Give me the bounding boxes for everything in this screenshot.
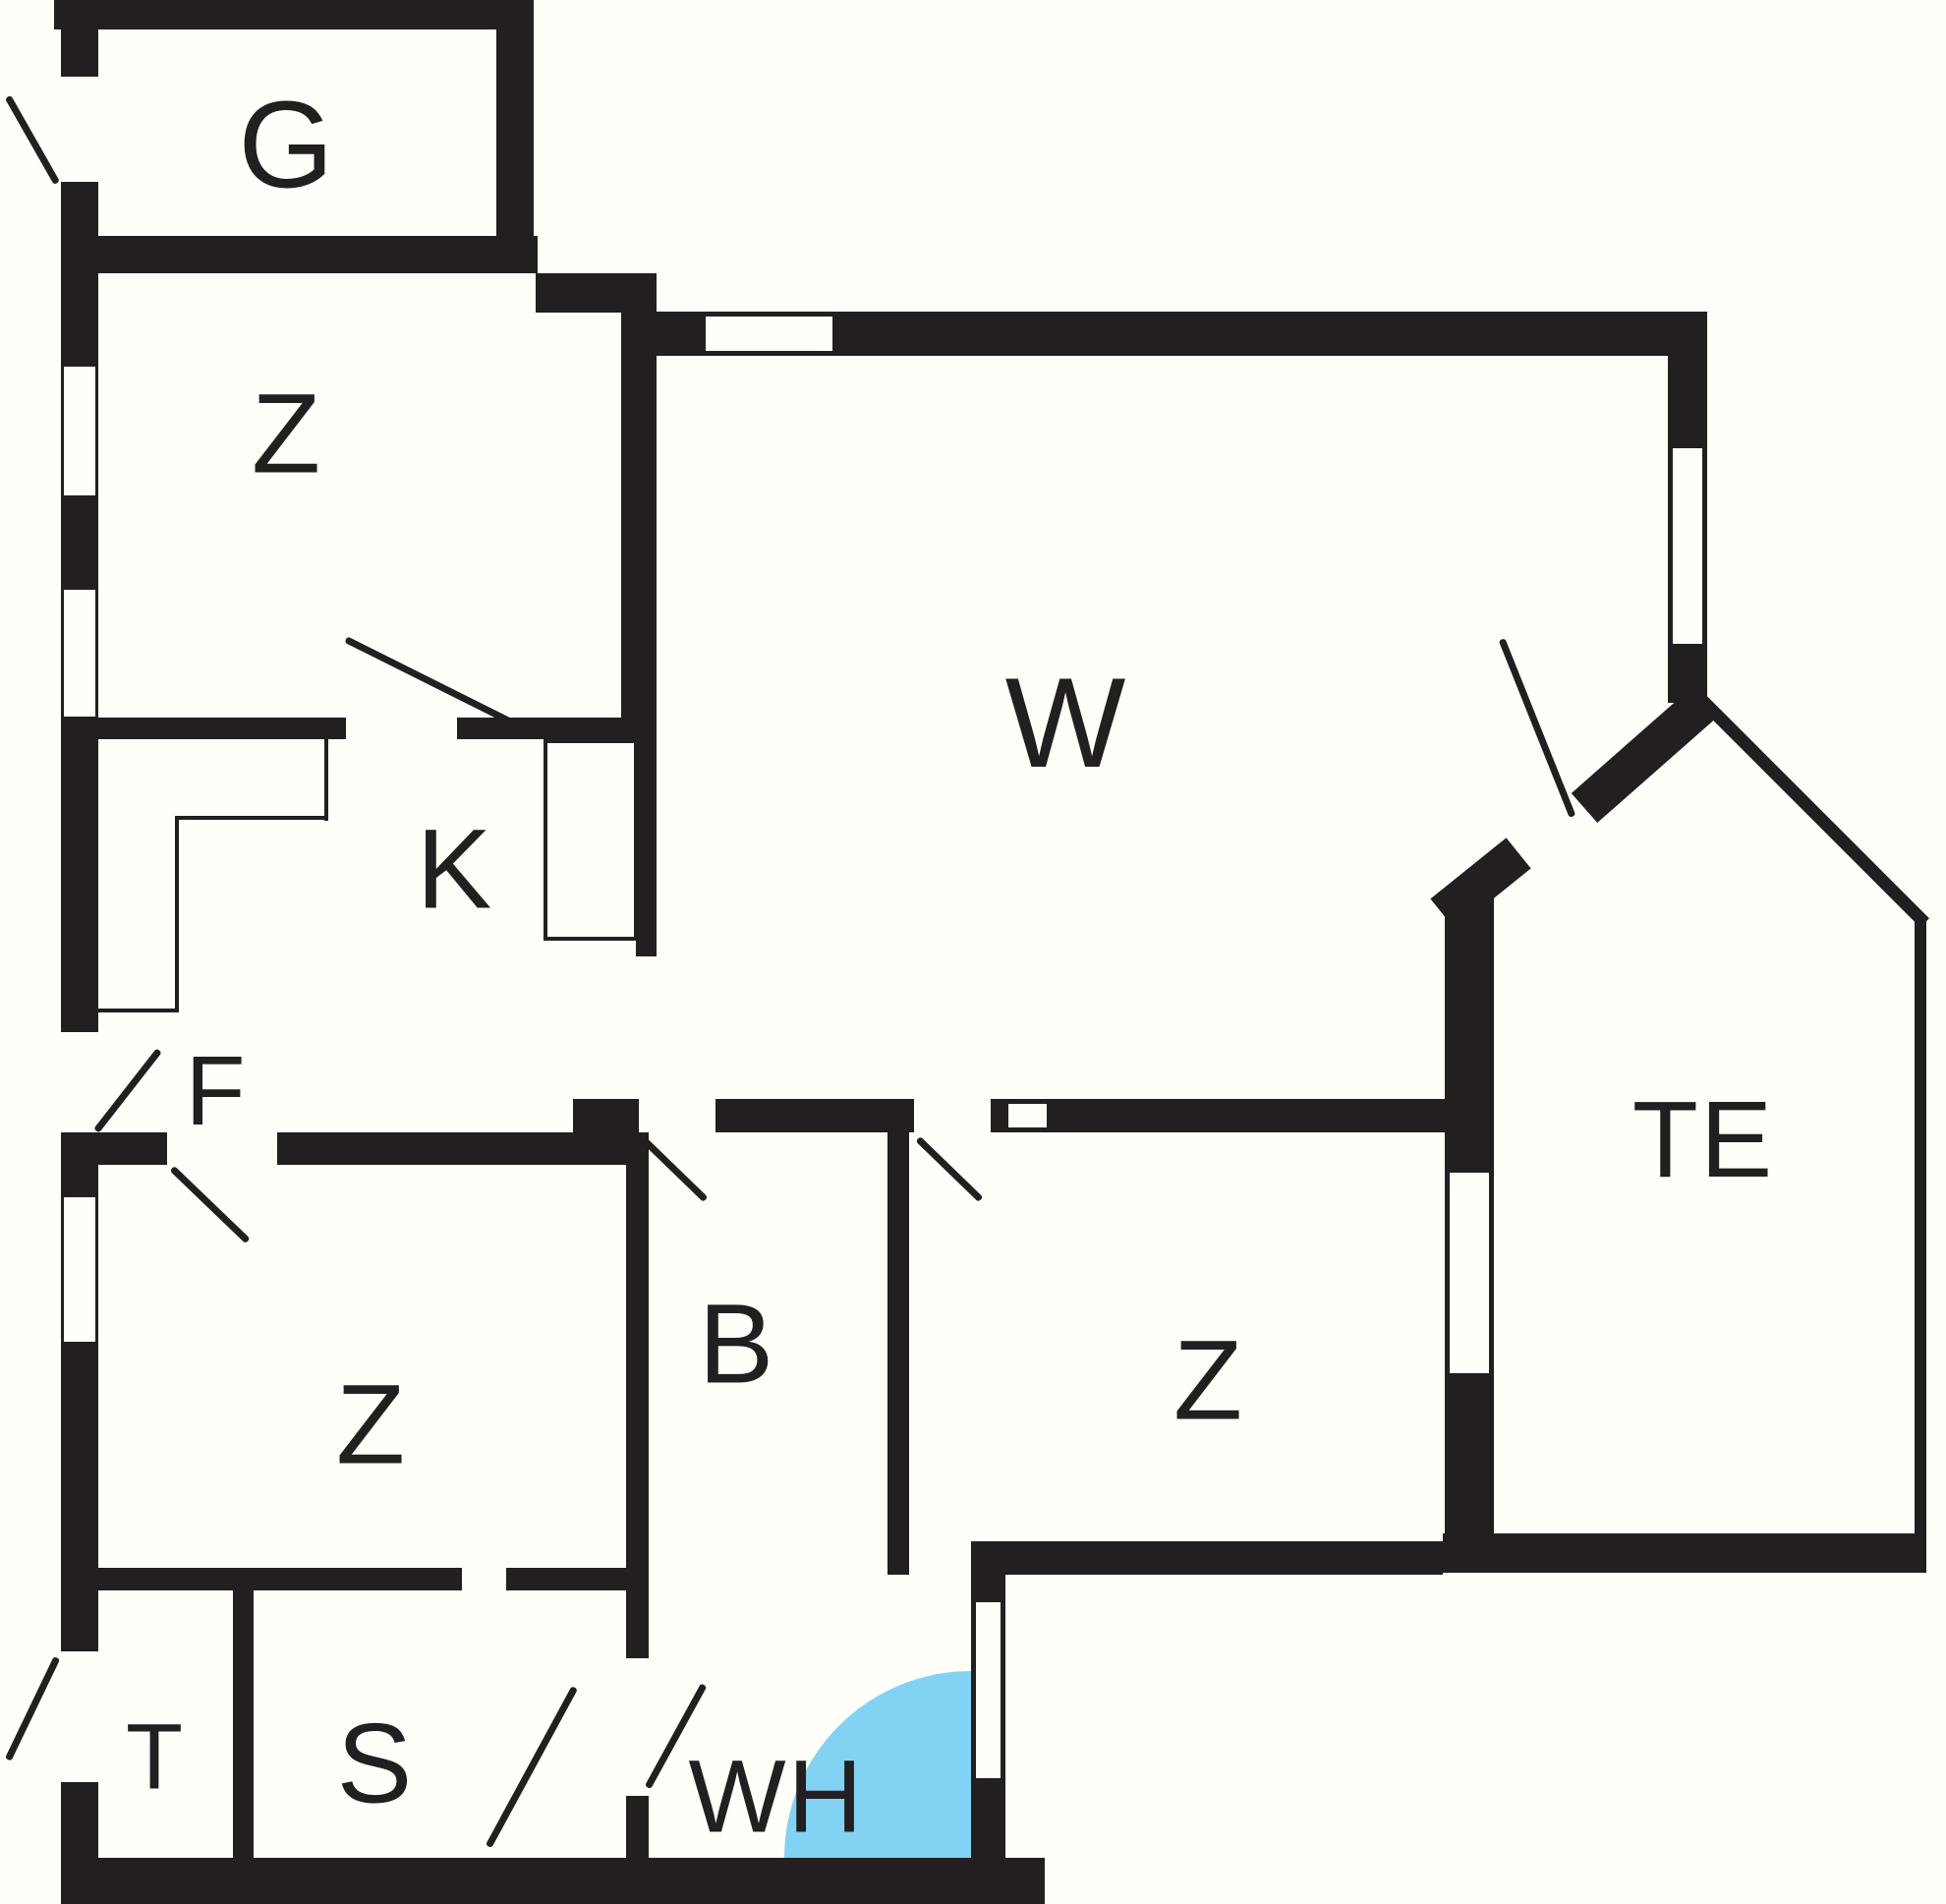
room-label-garage: G [238,85,335,207]
wall [971,1541,1443,1575]
room-label-bedroom-left: Z [336,1369,407,1482]
room-label-bedroom-top: Z [252,378,322,491]
door-swing [93,1048,162,1132]
door-opening [346,718,457,739]
room-label-storage: S [337,1708,415,1821]
door-swing [1499,638,1575,818]
window [703,314,835,354]
room-label-living-room: W [1005,659,1128,786]
diagonal-wall [1695,694,1929,928]
wall [233,1589,254,1860]
wall [93,718,346,739]
room-label-toilet: T [126,1711,185,1805]
door-swing [170,1165,251,1242]
wall [626,1132,649,1658]
kitchen-counter-line [98,1009,179,1012]
kitchen-counter-line [324,739,328,821]
door-opening [61,77,98,182]
door-opening [639,1099,715,1132]
floor-plan: GZKWFZBZTETSWH [0,0,1946,1904]
window [1005,1101,1050,1130]
wall [626,1796,649,1861]
window [1447,1170,1492,1376]
door-swing [641,1135,709,1201]
wall [887,1132,909,1575]
wall [61,1858,1045,1904]
kitchen-counter-line [177,816,328,820]
door-swing [5,1655,60,1760]
wall [496,0,534,273]
wall [61,236,538,273]
room-label-kitchen: K [417,814,494,927]
door-opening [462,1568,506,1590]
room-label-bedroom-middle: Z [1173,1325,1244,1438]
room-label-whirlpool-room: WH [689,1746,865,1849]
room-label-terrace: TE [1632,1086,1775,1194]
wall [457,718,657,739]
room-label-bathroom: B [699,1289,776,1402]
wall [636,739,657,956]
door-swing [486,1685,578,1847]
door-opening [626,1658,649,1796]
window [973,1599,1003,1781]
door-swing [5,94,60,184]
kitchen-counter-line [175,816,179,1012]
door-opening [61,1032,98,1132]
wall [98,1568,626,1590]
door-swing [344,636,512,724]
door-opening [914,1099,991,1132]
window [61,364,98,498]
wall [1443,1533,1926,1573]
kitchen-counter [544,739,638,941]
door-swing [916,1135,984,1201]
door-opening [61,1651,98,1782]
wall [1915,919,1926,1573]
window [61,1194,98,1345]
window [61,587,98,720]
room-label-hallway: F [185,1042,247,1140]
wall [61,0,98,1858]
wall [54,0,534,29]
window [1670,445,1705,647]
